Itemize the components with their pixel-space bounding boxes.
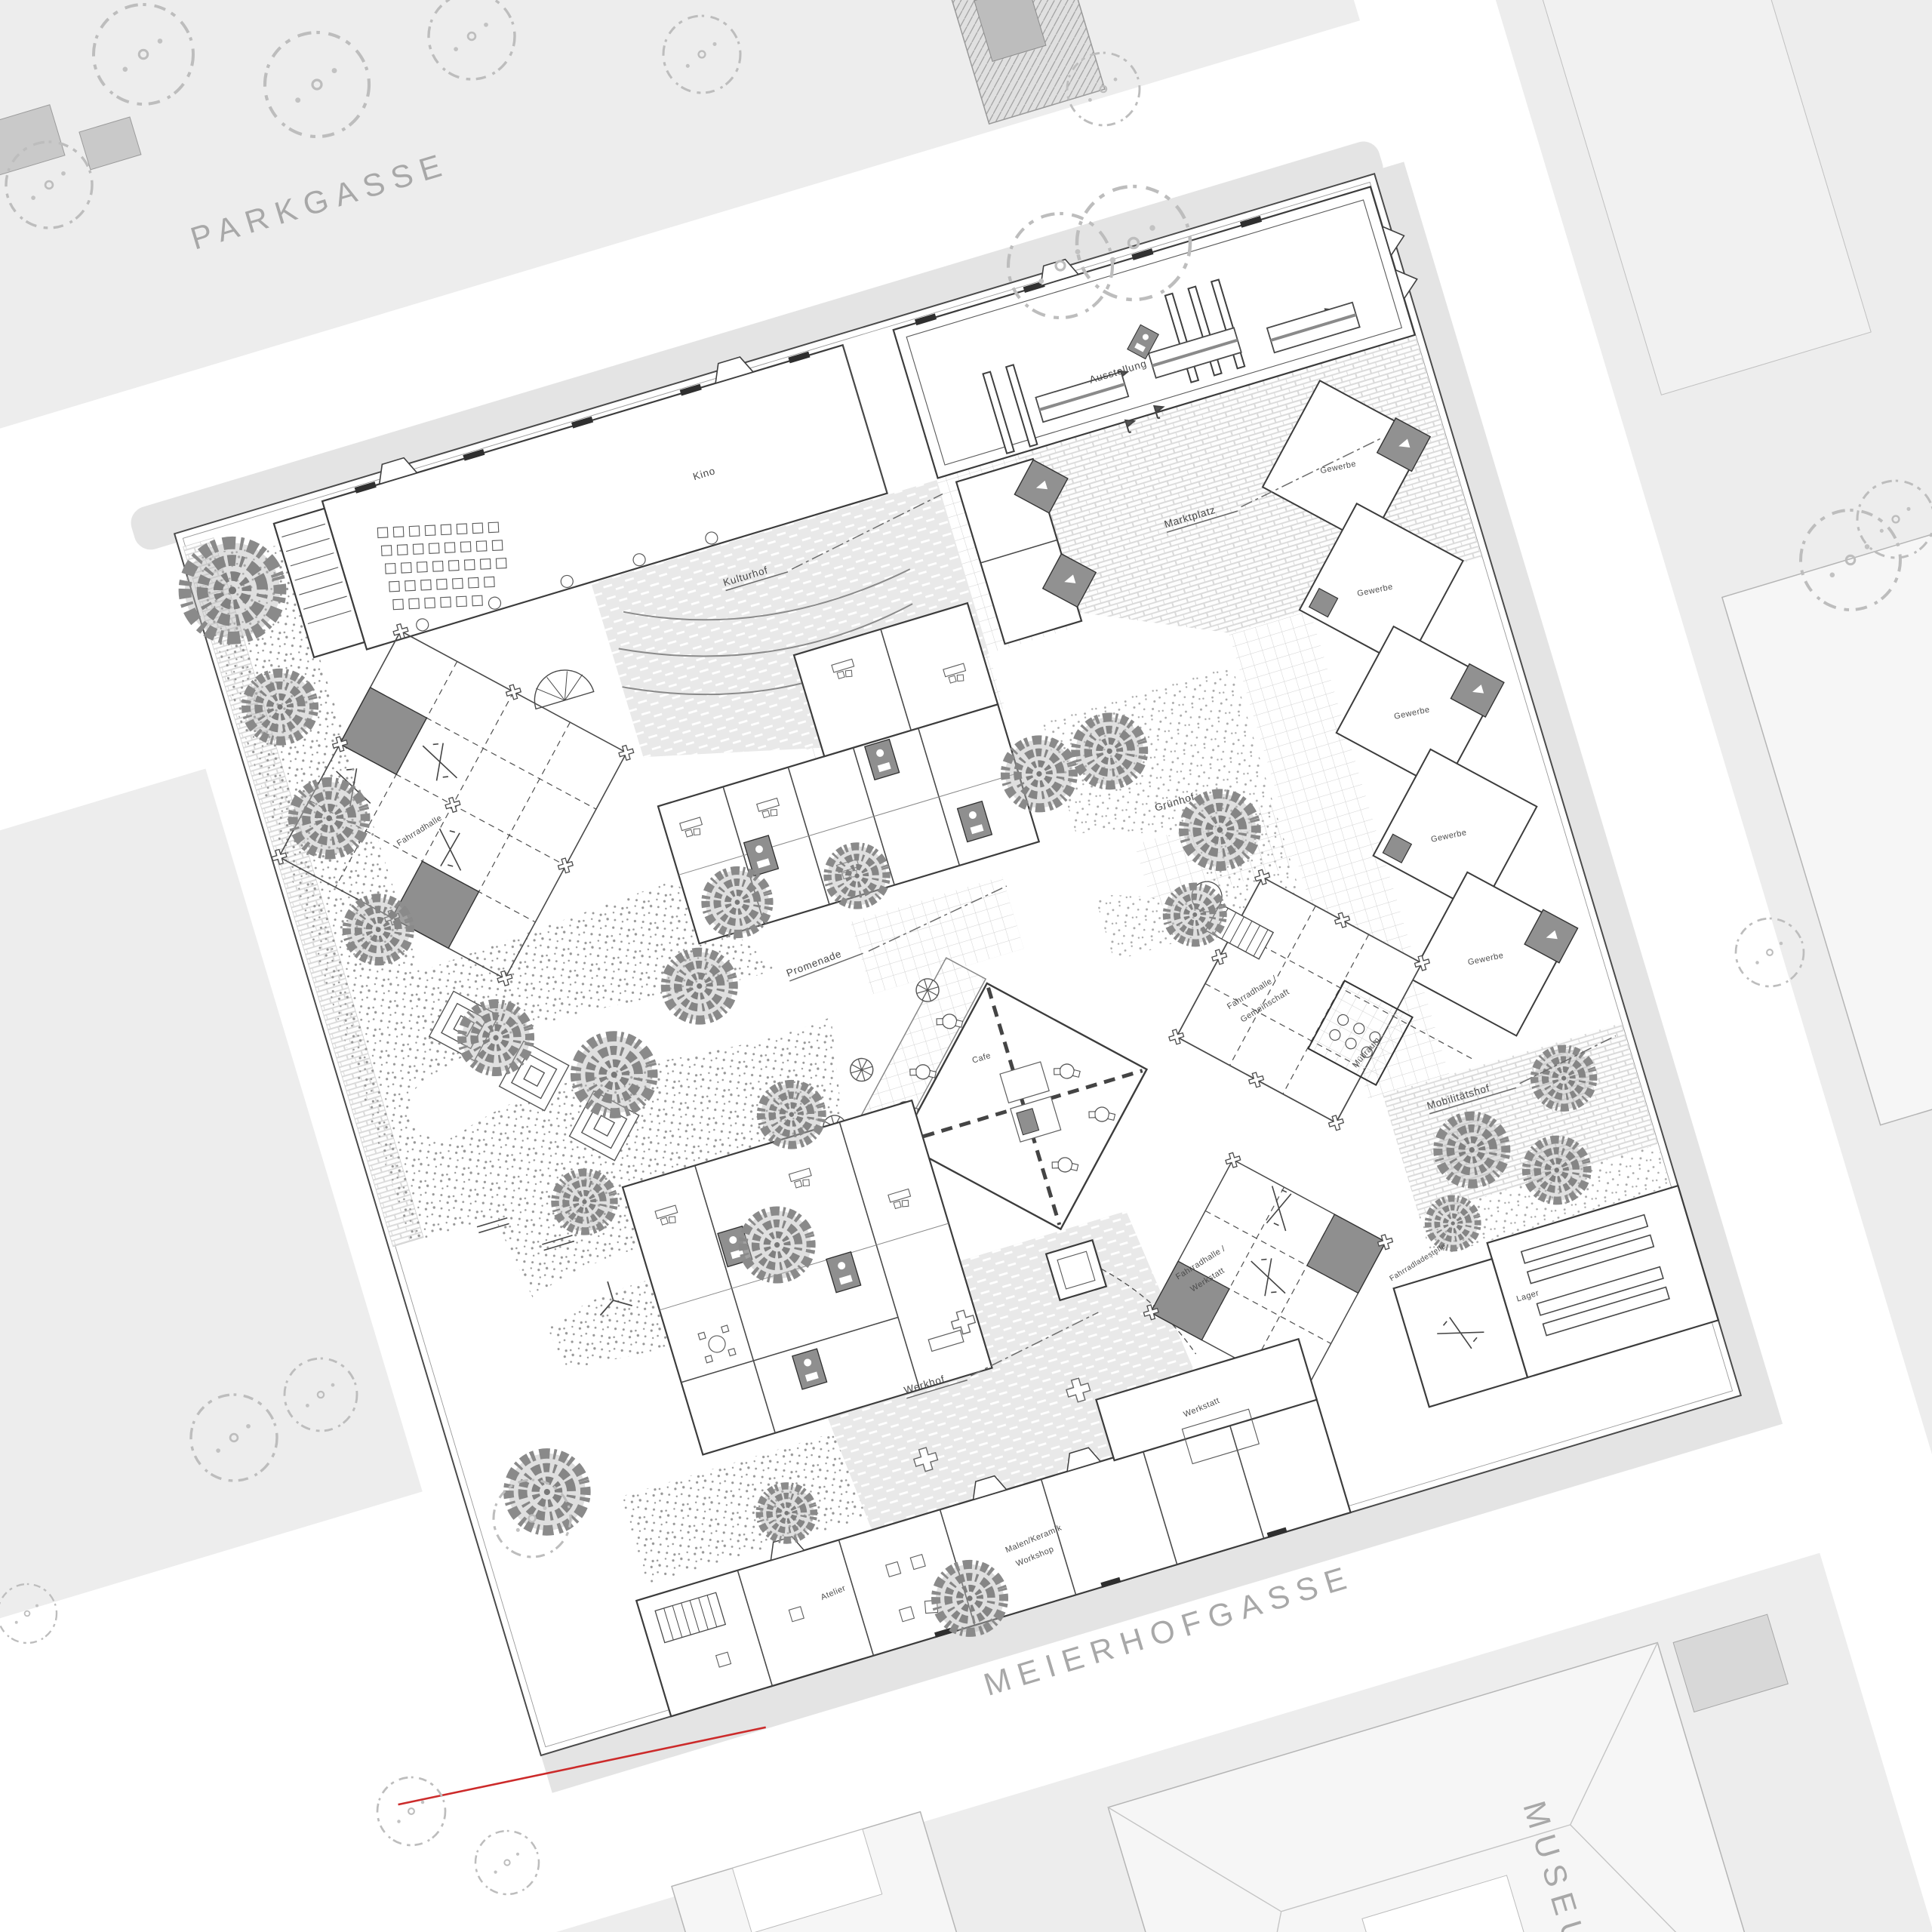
site-plan-drawing: Kino Ausstellung Kulturhof Marktplatz Pr…: [0, 0, 1932, 1932]
rotated-plan: Kino Ausstellung Kulturhof Marktplatz Pr…: [0, 0, 1932, 1932]
site-plan-page: Kino Ausstellung Kulturhof Marktplatz Pr…: [0, 0, 1932, 1932]
